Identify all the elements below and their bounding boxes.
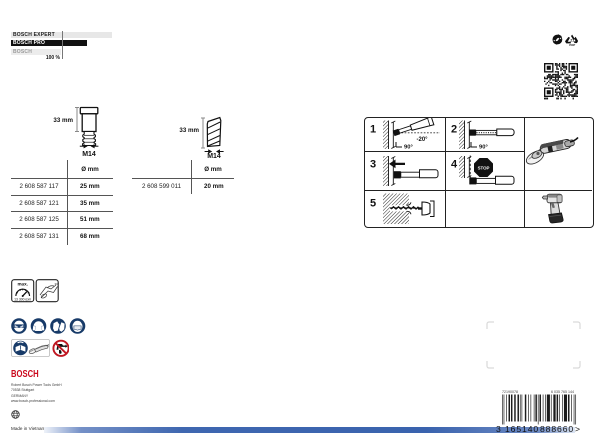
svg-text:STOP: STOP [478, 166, 490, 171]
svg-text:21: 21 [570, 38, 574, 42]
svg-text:30°: 30° [55, 282, 60, 286]
svg-text:max.: max. [17, 282, 27, 287]
svg-text:1: 1 [370, 124, 376, 136]
svg-text:3: 3 [370, 159, 376, 171]
svg-text:2: 2 [451, 124, 457, 136]
svg-text:90°: 90° [479, 145, 488, 151]
svg-text:4: 4 [451, 159, 458, 171]
svg-text:PAP: PAP [569, 43, 575, 47]
svg-text:-20°: -20° [417, 137, 429, 143]
svg-text:13 300 rpm: 13 300 rpm [14, 297, 31, 301]
svg-text:5: 5 [370, 198, 376, 210]
svg-text:90°: 90° [404, 145, 413, 151]
